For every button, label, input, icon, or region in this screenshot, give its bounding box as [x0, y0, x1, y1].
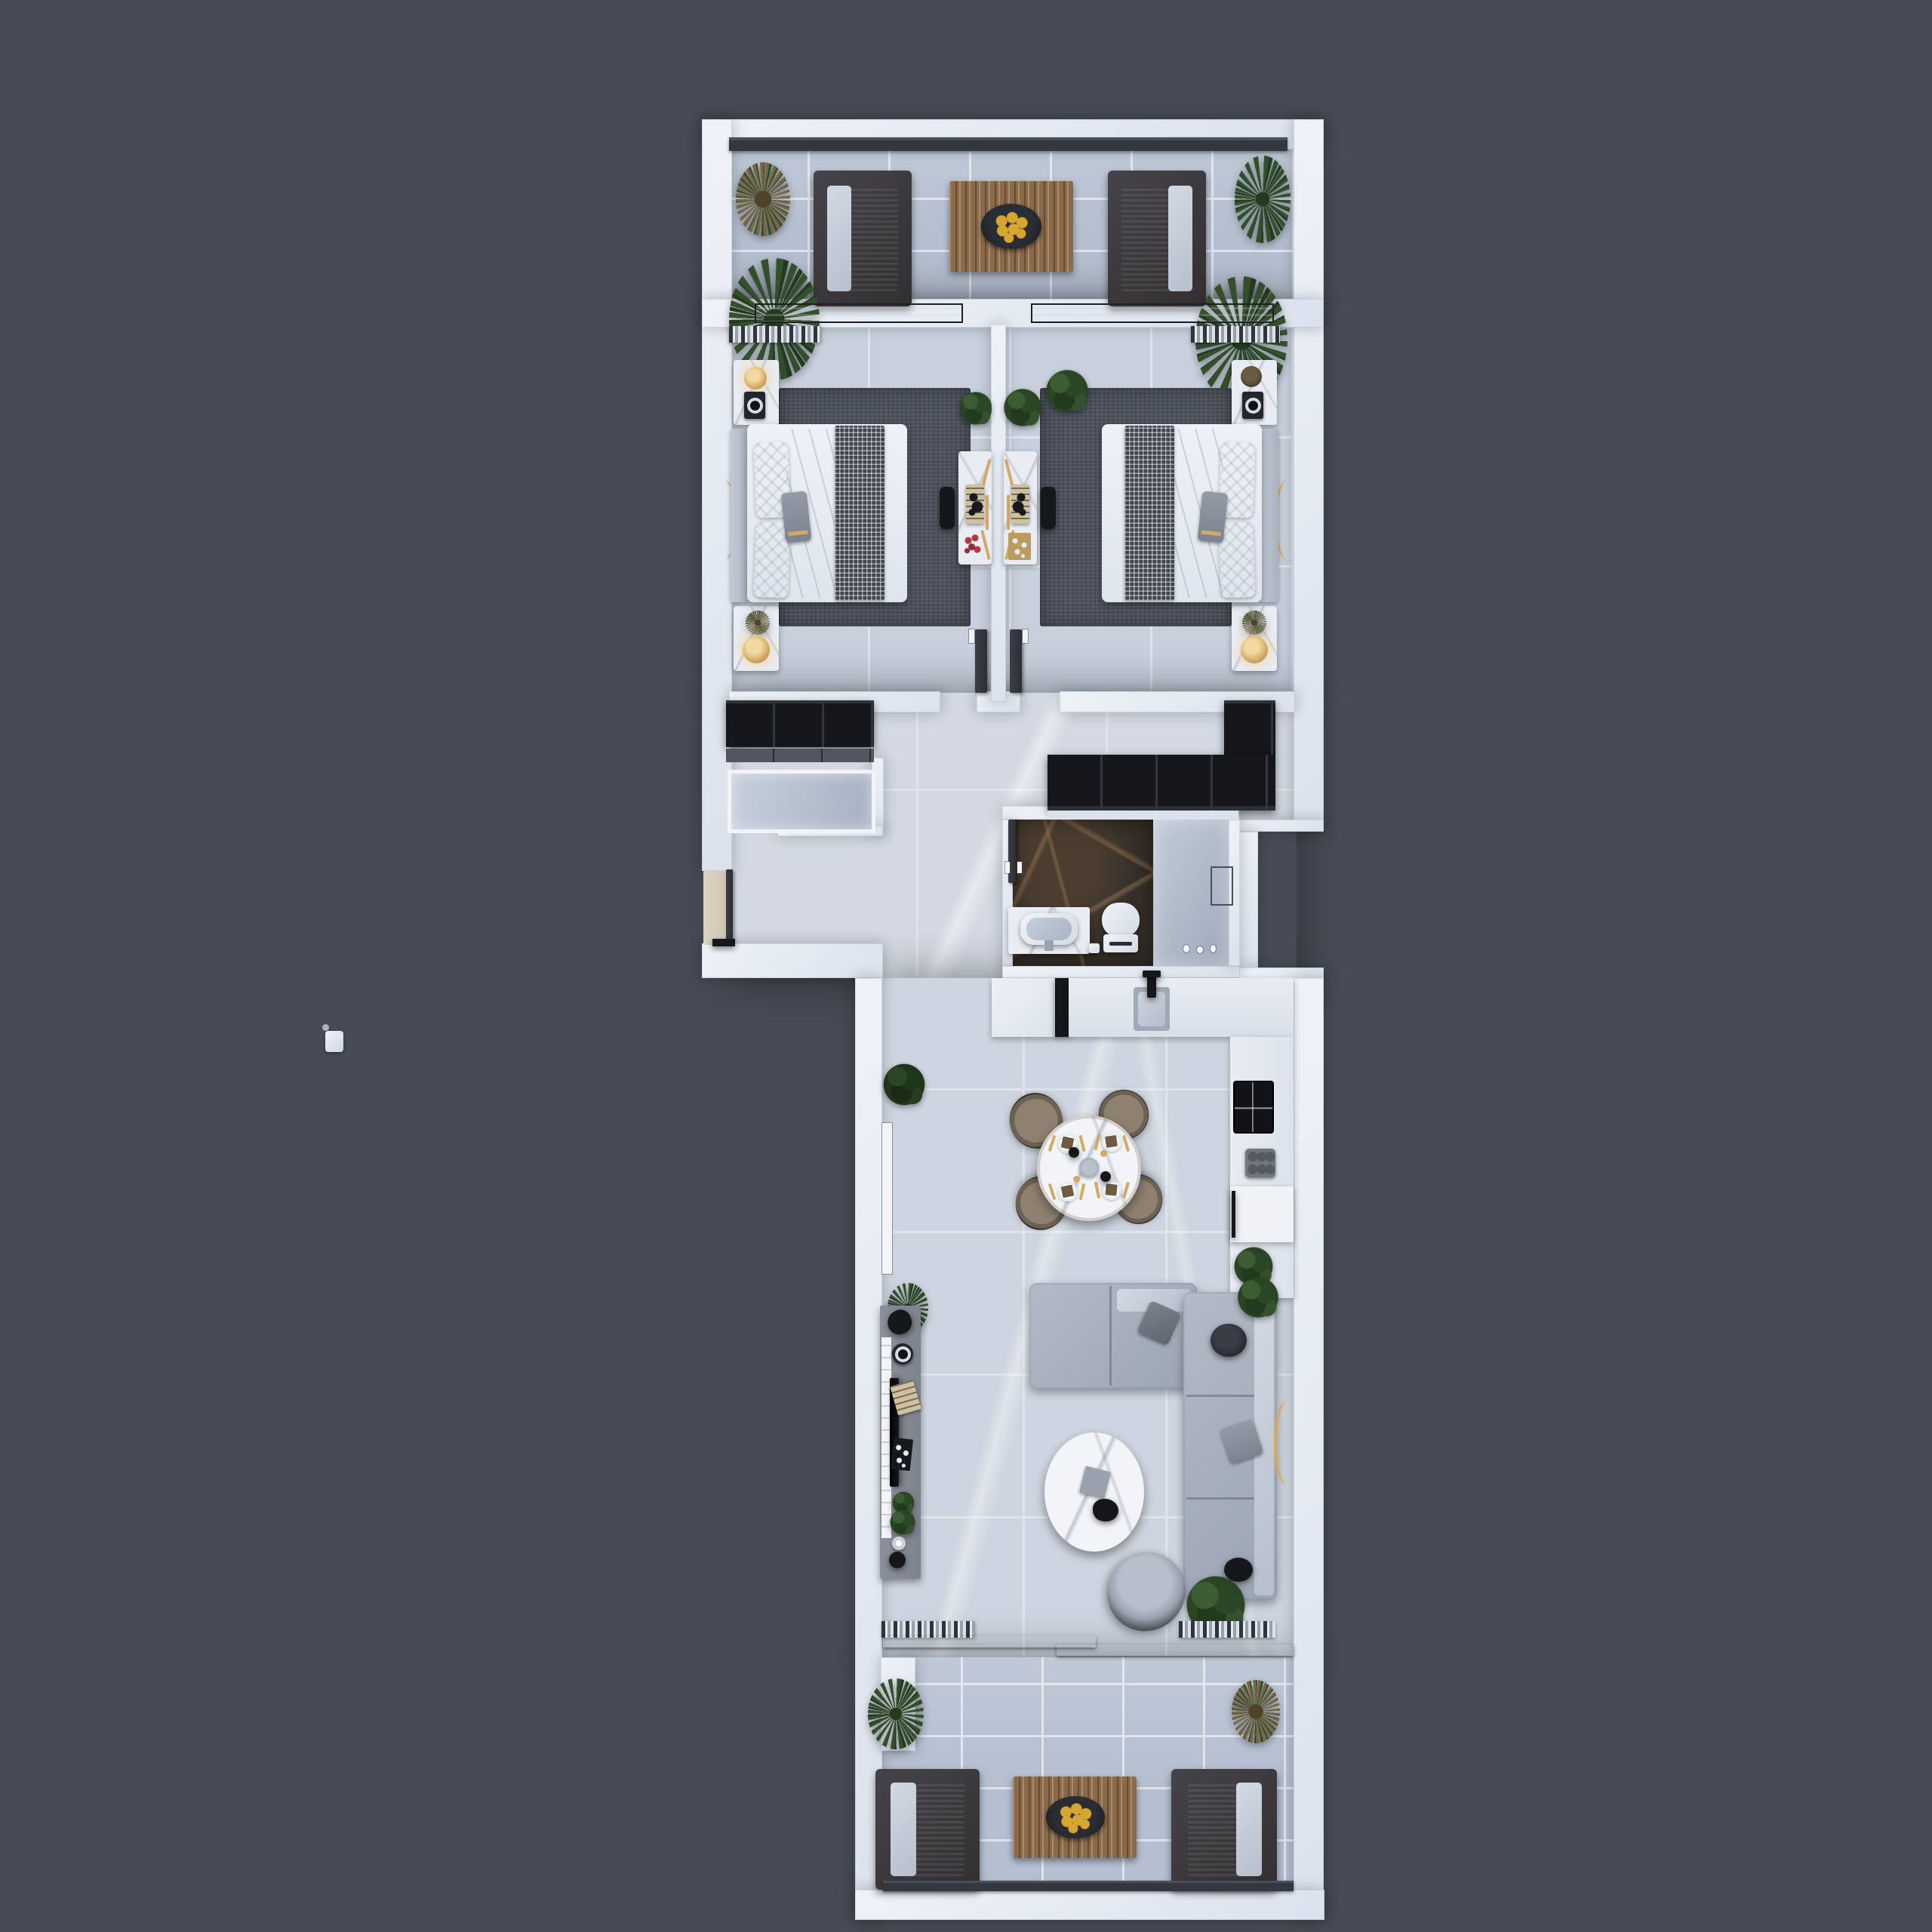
- fruit: [1052, 1800, 1099, 1835]
- cutlery-icon: [1078, 1135, 1085, 1152]
- plant-icon: [1232, 1680, 1280, 1743]
- window-bedroom-left: [755, 303, 963, 323]
- terrace-bottom-railing: [883, 1881, 1294, 1891]
- detached-object: [325, 1031, 343, 1052]
- wall-bottom: [855, 1890, 1324, 1920]
- wall-notch-side: [1238, 832, 1258, 969]
- decor-magazine: [891, 1438, 913, 1471]
- tv-console: [880, 1306, 921, 1579]
- plant-icon: [1044, 367, 1090, 415]
- plant-icon: [1236, 1274, 1280, 1321]
- dining-table: [1037, 1115, 1141, 1221]
- plant-icon: [1242, 611, 1266, 635]
- cutlery-icon: [1122, 1135, 1130, 1152]
- toilet-tank: [1103, 934, 1138, 952]
- napkin: [1061, 1185, 1075, 1198]
- center-bowl: [1069, 1147, 1079, 1158]
- plant-icon: [1235, 155, 1291, 243]
- plant-icon: [736, 162, 790, 236]
- coffee-table: [1044, 1432, 1144, 1552]
- curtain-bedroom-right: [1191, 326, 1280, 343]
- table-lamp-icon: [744, 367, 767, 389]
- table-lamp-icon: [1241, 636, 1268, 663]
- mirror-frame: [986, 495, 989, 530]
- cutlery-icon: [1048, 1183, 1057, 1200]
- induction-cooktop: [1233, 1081, 1274, 1134]
- cutlery-icon: [1094, 1134, 1100, 1150]
- wardrobe-right-upper: [1224, 700, 1275, 755]
- sofa-seam: [1186, 1497, 1254, 1500]
- cutlery-icon: [1122, 1182, 1130, 1198]
- sofa-pillow: [827, 186, 851, 291]
- decor-dots: [968, 491, 983, 518]
- kitchen-cabinet-dark: [1055, 978, 1070, 1037]
- pillow-trim: [788, 531, 808, 537]
- plant-icon: [960, 388, 992, 429]
- entrance-door-frame: [712, 939, 735, 946]
- terrace-top-sofa-left: [814, 171, 912, 306]
- faucet-icon: [1044, 940, 1054, 951]
- curtain-living-left: [881, 1621, 975, 1638]
- decor-pot: [889, 1552, 906, 1568]
- basin-inner: [1026, 918, 1072, 940]
- plant-icon: [883, 1060, 925, 1109]
- decor-bowl: [1241, 366, 1262, 387]
- fruit-bowl: [981, 204, 1041, 249]
- bathroom-bin: [1089, 943, 1100, 953]
- curtain-living-right: [1179, 1621, 1275, 1638]
- cutlery-icon: [1094, 1182, 1100, 1198]
- terrace-bottom-sofa-right: [1171, 1769, 1277, 1890]
- bathroom-door: [1008, 820, 1016, 883]
- napkin: [1105, 1135, 1118, 1148]
- sofa-seam: [1186, 1395, 1254, 1397]
- nightstand: [734, 360, 779, 425]
- bath-accessories: [1183, 945, 1189, 952]
- drawer-unit: [726, 749, 874, 762]
- window-bedroom-right: [1031, 303, 1274, 323]
- center-dish: [1079, 1158, 1099, 1177]
- terrace-bottom-sofa-left: [875, 1769, 980, 1890]
- candle-icon: [1100, 1150, 1107, 1157]
- kitchen-cabinet: [992, 978, 1057, 1037]
- shower-glass-door: [1211, 866, 1233, 906]
- cutlery-icon: [1048, 1135, 1057, 1152]
- sofa-seam: [1109, 1286, 1112, 1386]
- dishwasher: [1230, 1186, 1294, 1242]
- appliance-handle: [1232, 1191, 1235, 1238]
- door-frame: [969, 629, 974, 643]
- decor-cup: [892, 1537, 906, 1550]
- bed-checkered-throw: [835, 426, 884, 601]
- table-book: [1079, 1466, 1111, 1498]
- closet-glass-door: [728, 770, 875, 833]
- mirror-frame: [1007, 495, 1010, 530]
- bath-accessories: [1197, 946, 1203, 953]
- accent-pillow: [781, 491, 812, 543]
- wall-ledge: [882, 1123, 892, 1274]
- wall-right-upper: [1294, 119, 1324, 832]
- speaker-icon: [744, 392, 765, 419]
- plant-icon: [1004, 385, 1041, 430]
- terrace-top-table: [949, 181, 1073, 272]
- kitchen-faucet-icon: [1143, 971, 1161, 977]
- pillow-trim: [1201, 531, 1221, 537]
- sink-vanity: [1008, 907, 1090, 954]
- accent-pillow: [1198, 491, 1229, 543]
- speaker-icon: [1242, 392, 1263, 419]
- vanity-desk-right: [1004, 451, 1037, 565]
- nightstand: [734, 606, 779, 671]
- kitchen-counter-top: [1069, 978, 1294, 1037]
- fruit: [987, 208, 1035, 245]
- wardrobe-left: [726, 700, 874, 747]
- terrace-top-sofa-right: [1108, 171, 1206, 306]
- wardrobe-base: [1048, 811, 1238, 820]
- speaker-icon: [892, 1343, 913, 1364]
- cutlery-icon: [1079, 1183, 1085, 1200]
- plant-icon: [889, 1508, 916, 1537]
- flush-slot: [1109, 942, 1132, 946]
- door-bedroom-right: [1010, 629, 1022, 693]
- door-bedroom-left: [975, 629, 987, 693]
- wall-left-step: [702, 943, 883, 978]
- plant-icon: [746, 611, 770, 635]
- terrace-top-railing: [729, 137, 1287, 151]
- scene: { "scene": { "description": "Top-down 3D…: [0, 0, 1932, 1932]
- throw-pillow: [1211, 1324, 1247, 1357]
- bed-checkered-throw: [1124, 426, 1174, 601]
- sofa-pillow: [1168, 186, 1192, 291]
- decor-bowl: [884, 1306, 915, 1337]
- table-vase: [1093, 1499, 1118, 1521]
- toilet: [1102, 903, 1140, 937]
- terrace-bottom-table: [1013, 1777, 1137, 1858]
- sliding-door: [1057, 1644, 1294, 1656]
- table-lamp-icon: [743, 636, 770, 663]
- nightstand: [1232, 606, 1277, 671]
- wall-notch-top: [1238, 820, 1324, 832]
- flowers-icon: [961, 533, 984, 558]
- fruit-bowl: [1046, 1796, 1105, 1838]
- wardrobe-right: [1048, 755, 1275, 811]
- bath-accessories: [1211, 945, 1216, 952]
- napkin: [1105, 1183, 1117, 1195]
- entrance-door: [726, 869, 733, 942]
- vanity-desk-left: [958, 451, 992, 565]
- wall-bath-bottom: [1002, 966, 1240, 978]
- detached-object-part: [322, 1024, 329, 1031]
- sofa-pillow: [891, 1783, 916, 1876]
- door-frame: [1023, 629, 1028, 643]
- grill-pan: [1245, 1149, 1275, 1177]
- wall-right-lower: [1294, 978, 1324, 1920]
- perfume-tray: [1008, 533, 1031, 560]
- vanity-chair: [940, 487, 955, 529]
- sofa-top-section: [1029, 1283, 1197, 1389]
- candle-icon: [1073, 1176, 1080, 1183]
- vanity-chair: [1041, 487, 1056, 529]
- decor-dots: [1013, 491, 1028, 518]
- center-bowl: [1100, 1171, 1111, 1182]
- bed-headboard: [731, 429, 749, 602]
- door-frame: [1017, 862, 1022, 873]
- curtain-bedroom-left: [729, 326, 821, 343]
- bed-headboard: [1260, 429, 1278, 602]
- nightstand: [1232, 360, 1277, 425]
- door-frame: [1005, 862, 1010, 873]
- sofa-pillow: [1236, 1783, 1262, 1876]
- plant-icon: [868, 1678, 924, 1749]
